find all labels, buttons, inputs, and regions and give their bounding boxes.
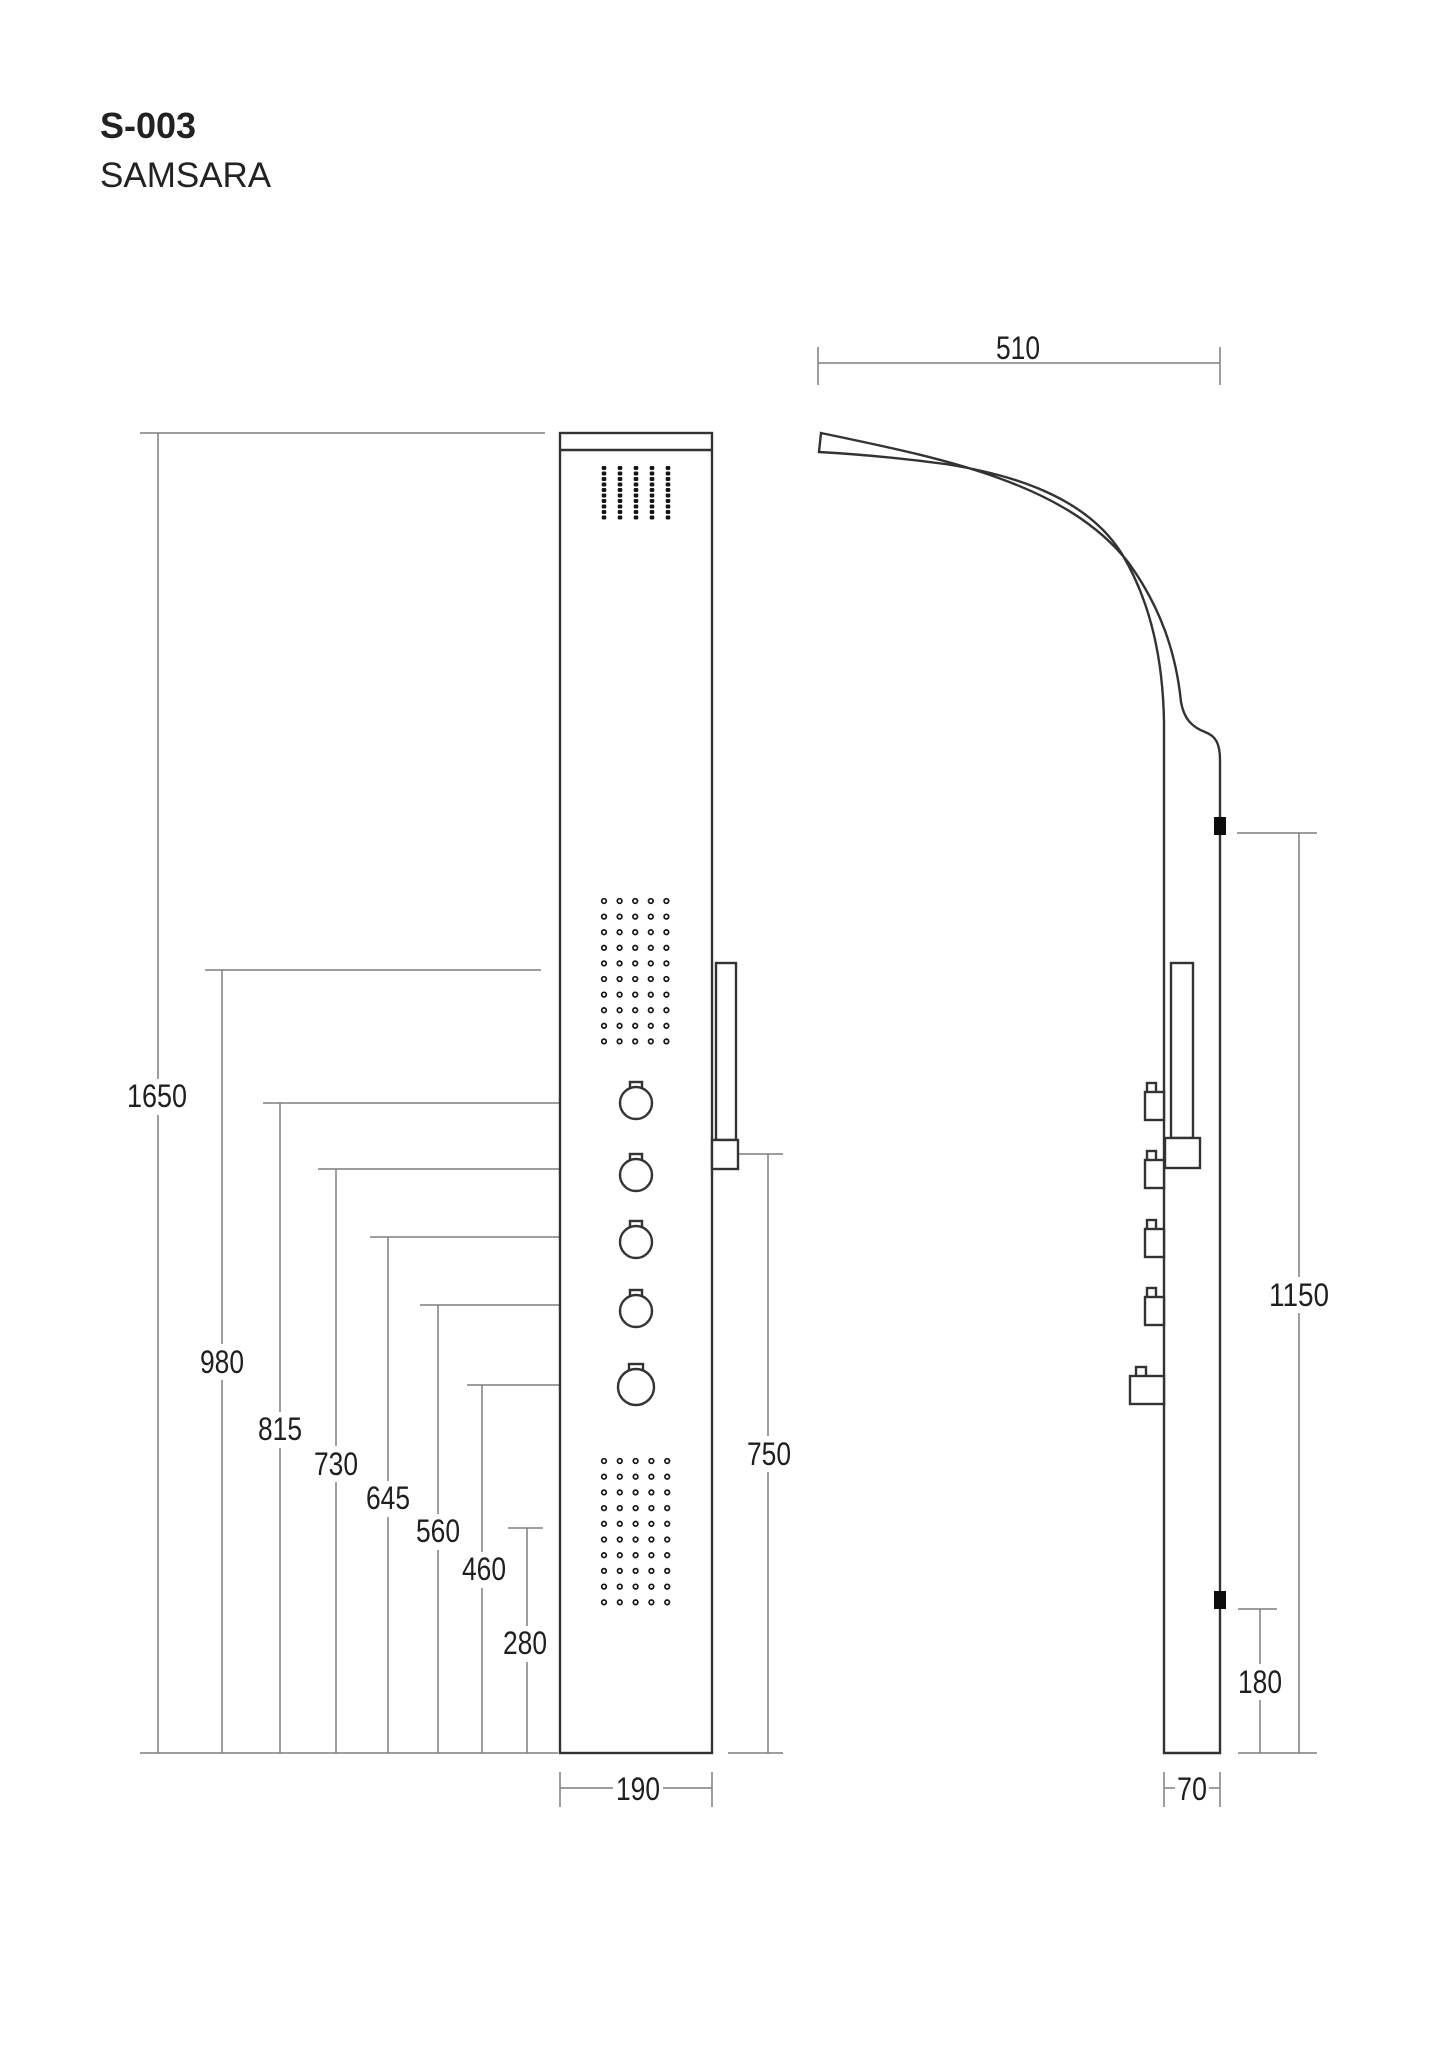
lower-body-jets-jet <box>649 1584 654 1589</box>
dim-label-1650: 1650 <box>127 1078 187 1114</box>
lower-body-jets-jet <box>665 1490 670 1495</box>
head-spray-grid-jet <box>602 483 607 487</box>
hand-shower-side <box>1171 963 1193 1138</box>
dim-label-190: 190 <box>616 1771 660 1807</box>
upper-body-jets-jet <box>617 1039 622 1044</box>
lower-body-jets-jet <box>649 1459 654 1464</box>
head-spray-grid-jet <box>650 472 655 476</box>
wall-mount-marker-lower <box>1214 1591 1226 1609</box>
lower-body-jets-jet <box>665 1506 670 1511</box>
head-spray-grid-jet <box>650 477 655 481</box>
head-spray-grid-jet <box>618 472 623 476</box>
upper-body-jets-jet <box>602 899 607 904</box>
knob-4 <box>620 1295 652 1327</box>
dim-label-730: 730 <box>314 1446 358 1482</box>
upper-body-jets-jet <box>602 1008 607 1013</box>
hand-shower-front <box>716 963 736 1140</box>
head-spray-grid-jet <box>602 505 607 509</box>
lower-body-jets-jet <box>602 1474 607 1479</box>
head-spray-grid-jet <box>618 505 623 509</box>
lower-body-jets-jet <box>665 1569 670 1574</box>
upper-body-jets-jet <box>664 946 669 951</box>
lower-body-jets-jet <box>665 1584 670 1589</box>
knob-2 <box>620 1159 652 1191</box>
upper-body-jets-jet <box>664 1008 669 1013</box>
lower-body-jets-jet <box>602 1490 607 1495</box>
head-spray-grid-jet <box>634 472 639 476</box>
head-spray-grid-jet <box>666 505 671 509</box>
lower-body-jets-jet <box>633 1600 638 1605</box>
upper-body-jets-jet <box>649 930 654 935</box>
head-spray-grid-jet <box>634 483 639 487</box>
drawing-page: S-003 SAMSARA <box>0 0 1448 2047</box>
head-spray-grid-jet <box>602 472 607 476</box>
upper-body-jets-jet <box>617 1008 622 1013</box>
head-spray-grid-jet <box>666 466 671 470</box>
head-spray-grid-jet <box>618 516 623 520</box>
upper-body-jets-jet <box>602 1024 607 1029</box>
upper-body-jets-jet <box>664 977 669 982</box>
upper-body-jets-jet <box>664 1024 669 1029</box>
upper-body-jets-jet <box>649 977 654 982</box>
side-knob-1 <box>1145 1092 1164 1120</box>
upper-body-jets-jet <box>649 961 654 966</box>
lower-body-jets-jet <box>618 1459 623 1464</box>
upper-body-jets-jet <box>633 1024 638 1029</box>
head-spray-grid-jet <box>634 505 639 509</box>
head-spray-grid-jet <box>650 499 655 503</box>
lower-body-jets-jet <box>602 1584 607 1589</box>
lower-body-jets-jet <box>618 1537 623 1542</box>
lower-body-jets-jet <box>665 1459 670 1464</box>
lower-body-jets-jet <box>618 1569 623 1574</box>
upper-body-jets-jet <box>649 992 654 997</box>
upper-body-jets-jet <box>664 930 669 935</box>
upper-body-jets-jet <box>633 992 638 997</box>
wall-mount-marker-upper <box>1214 817 1226 835</box>
lower-body-jets-jet <box>649 1537 654 1542</box>
lower-body-jets-jet <box>633 1569 638 1574</box>
head-spray-grid-jet <box>650 494 655 498</box>
lower-body-jets-jet <box>649 1506 654 1511</box>
upper-body-jets-jet <box>649 914 654 919</box>
lower-body-jets-jet <box>602 1600 607 1605</box>
head-spray-grid-jet <box>602 466 607 470</box>
upper-body-jets-jet <box>649 1024 654 1029</box>
lower-body-jets-jet <box>618 1490 623 1495</box>
lower-body-jets-jet <box>649 1600 654 1605</box>
head-spray-grid-jet <box>650 488 655 492</box>
side-knob-4 <box>1145 1297 1164 1325</box>
upper-body-jets-jet <box>602 930 607 935</box>
head-spray-grid-jet <box>602 510 607 514</box>
lower-body-jets-jet <box>665 1474 670 1479</box>
head-spray-grid-jet <box>650 516 655 520</box>
head-spray-grid-jet <box>602 516 607 520</box>
lower-body-jets-jet <box>633 1537 638 1542</box>
dim-label-180: 180 <box>1238 1664 1282 1700</box>
upper-body-jets-jet <box>602 914 607 919</box>
upper-body-jets-jet <box>633 1039 638 1044</box>
upper-body-jets-jet <box>633 961 638 966</box>
upper-body-jets-jet <box>617 914 622 919</box>
dim-label-280: 280 <box>503 1625 547 1661</box>
upper-body-jets-jet <box>649 1008 654 1013</box>
dim-label-980: 980 <box>200 1344 244 1380</box>
side-knob-3 <box>1145 1229 1164 1257</box>
lower-body-jets-jet <box>633 1474 638 1479</box>
head-spray-grid-jet <box>650 483 655 487</box>
upper-body-jets-jet <box>617 946 622 951</box>
upper-body-jets-jet <box>664 961 669 966</box>
lower-body-jets-jet <box>649 1474 654 1479</box>
lower-body-jets-jet <box>602 1459 607 1464</box>
lower-body-jets-jet <box>618 1522 623 1527</box>
head-spray-grid-jet <box>666 516 671 520</box>
head-spray-grid-jet <box>650 466 655 470</box>
upper-body-jets-jet <box>633 977 638 982</box>
head-spray-grid-jet <box>650 510 655 514</box>
head-spray-grid-jet <box>666 510 671 514</box>
hand-shower-holder-front <box>712 1140 738 1169</box>
head-spray-grid-jet <box>634 516 639 520</box>
lower-body-jets-jet <box>602 1537 607 1542</box>
upper-body-jets-jet <box>617 1024 622 1029</box>
lower-body-jets-jet <box>633 1459 638 1464</box>
lower-body-jets-jet <box>618 1474 623 1479</box>
knob-5 <box>618 1369 654 1405</box>
head-spray-grid-jet <box>666 499 671 503</box>
lower-body-jets-jet <box>665 1522 670 1527</box>
dim-label-1150: 1150 <box>1269 1277 1329 1313</box>
head-spray-grid-jet <box>618 466 623 470</box>
dim-label-70: 70 <box>1177 1771 1207 1807</box>
upper-body-jets-jet <box>633 930 638 935</box>
dim-label-510: 510 <box>996 330 1040 366</box>
upper-body-jets-jet <box>633 946 638 951</box>
lower-body-jets-jet <box>633 1522 638 1527</box>
head-spray-grid-jet <box>602 494 607 498</box>
lower-body-jets-jet <box>618 1584 623 1589</box>
dim-label-460: 460 <box>462 1551 506 1587</box>
model-name: SAMSARA <box>100 156 272 195</box>
dim-label-645: 645 <box>366 1480 410 1516</box>
knob-3 <box>620 1226 652 1258</box>
side-knobs <box>1130 1083 1164 1404</box>
side-spout <box>1130 1376 1164 1404</box>
front-view <box>560 433 738 1753</box>
upper-body-jets-jet <box>602 977 607 982</box>
upper-body-jets-jet <box>664 992 669 997</box>
dim-label-815: 815 <box>258 1411 302 1447</box>
upper-body-jets-jet <box>602 946 607 951</box>
side-knob-2 <box>1145 1160 1164 1188</box>
lower-body-jets-jet <box>602 1553 607 1558</box>
upper-body-jets-jet <box>617 961 622 966</box>
upper-body-jets-jet <box>633 899 638 904</box>
upper-body-jets-jet <box>664 1039 669 1044</box>
lower-body-jets-jet <box>633 1506 638 1511</box>
lower-body-jets-jet <box>665 1600 670 1605</box>
head-spray-grid-jet <box>666 477 671 481</box>
upper-body-jets-jet <box>617 930 622 935</box>
head-spray-grid-jet <box>618 483 623 487</box>
upper-body-jets-jet <box>602 1039 607 1044</box>
head-spray-grid-jet <box>634 510 639 514</box>
head-spray-grid-jet <box>666 472 671 476</box>
lower-body-jets-jet <box>602 1506 607 1511</box>
head-spray-grid-jet <box>634 499 639 503</box>
lower-body-jets-jet <box>618 1600 623 1605</box>
upper-body-jets-jet <box>617 899 622 904</box>
head-spray-grid-jet <box>618 488 623 492</box>
head-spray-grid-jet <box>634 466 639 470</box>
upper-body-jets-jet <box>633 914 638 919</box>
head-spray-grid-jet <box>602 499 607 503</box>
lower-body-jets-jet <box>665 1553 670 1558</box>
upper-body-jets-jet <box>602 961 607 966</box>
lower-body-jets-jet <box>649 1553 654 1558</box>
head-spray-grid-jet <box>634 494 639 498</box>
head-spray-grid-jet <box>618 494 623 498</box>
upper-body-jets-jet <box>664 914 669 919</box>
head-spray-grid-jet <box>618 477 623 481</box>
lower-body-jets-jet <box>665 1537 670 1542</box>
upper-body-jets-jet <box>649 1039 654 1044</box>
head-spray-grid-jet <box>666 488 671 492</box>
head-spray-grid-jet <box>634 488 639 492</box>
head-spray-grid-jet <box>666 494 671 498</box>
hand-shower-holder-side <box>1165 1138 1200 1168</box>
lower-body-jets-jet <box>618 1506 623 1511</box>
head-spray-grid-jet <box>666 483 671 487</box>
head-spray-grid-jet <box>650 505 655 509</box>
head-spray-grid-jet <box>602 488 607 492</box>
lower-body-jets-jet <box>602 1522 607 1527</box>
upper-body-jets-jet <box>633 1008 638 1013</box>
lower-body-jets-jet <box>649 1490 654 1495</box>
dim-label-560: 560 <box>416 1513 460 1549</box>
knob-1 <box>620 1087 652 1119</box>
lower-body-jets-jet <box>633 1584 638 1589</box>
lower-body-jets-jet <box>602 1569 607 1574</box>
side-view <box>819 433 1226 1753</box>
lower-body-jets-jet <box>633 1553 638 1558</box>
technical-drawing: S-003 SAMSARA <box>0 0 1448 2047</box>
head-spray-grid-jet <box>618 510 623 514</box>
dim-label-750: 750 <box>747 1436 791 1472</box>
lower-body-jets-jet <box>649 1569 654 1574</box>
lower-body-jets-jet <box>633 1490 638 1495</box>
upper-body-jets-jet <box>617 977 622 982</box>
head-spray-grid-jet <box>602 477 607 481</box>
model-code: S-003 <box>100 105 196 146</box>
upper-body-jets-jet <box>617 992 622 997</box>
head-spray-grid-jet <box>618 499 623 503</box>
head-spray-grid-jet <box>634 477 639 481</box>
upper-body-jets-jet <box>602 992 607 997</box>
lower-body-jets-jet <box>649 1522 654 1527</box>
upper-body-jets-jet <box>649 899 654 904</box>
upper-body-jets-jet <box>649 946 654 951</box>
side-view-dimension-lines <box>818 347 1317 1807</box>
upper-body-jets-jet <box>664 899 669 904</box>
lower-body-jets-jet <box>618 1553 623 1558</box>
